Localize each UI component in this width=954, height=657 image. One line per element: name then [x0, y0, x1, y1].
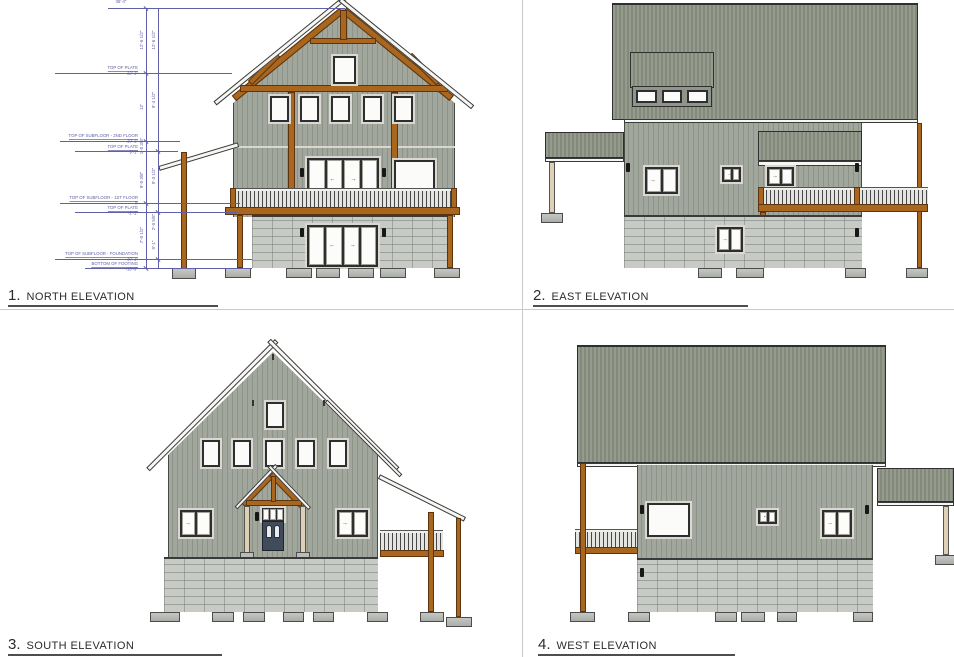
footing — [434, 268, 460, 278]
window-pane: → — [769, 169, 780, 184]
west-roof — [577, 345, 886, 463]
window-pane — [733, 169, 740, 180]
east-porch-fascia — [545, 158, 624, 162]
horizontal-divider — [0, 309, 954, 310]
east-dormer — [630, 52, 714, 88]
window-pane: → — [724, 169, 731, 180]
railing-newel-post — [230, 188, 236, 208]
west-porch-post — [943, 506, 949, 555]
view-label: WEST ELEVATION — [557, 640, 657, 652]
level-annotation: BOTTOM OF FOOTING-10'-9" — [46, 262, 138, 272]
view-number: 2. — [533, 287, 546, 304]
vertical-divider — [522, 0, 523, 657]
porch-post — [300, 506, 306, 554]
view-number: 1. — [8, 287, 21, 304]
north-loft-window — [333, 56, 356, 84]
east-porch-post — [549, 162, 555, 213]
window-pane: → — [339, 512, 352, 535]
chain-dim: 12' — [140, 90, 146, 125]
west-foundation — [637, 558, 873, 612]
chain-dim: 12'-6 1/2" — [152, 23, 158, 58]
window-pane — [731, 229, 741, 250]
footing — [225, 268, 251, 278]
window-pane: ← — [760, 512, 767, 522]
footing — [777, 612, 797, 622]
view-title-north: 1. NORTH ELEVATION — [8, 287, 218, 307]
dormer-window — [687, 90, 708, 103]
footing — [446, 617, 472, 627]
east-dormer-window-band — [632, 86, 712, 107]
window-pane — [782, 169, 793, 184]
footing — [628, 612, 650, 622]
wall-sconce-icon — [382, 168, 386, 177]
footing — [367, 612, 388, 622]
view-number: 4. — [538, 636, 551, 653]
window-pane: → — [182, 512, 195, 535]
footing — [212, 612, 234, 622]
north-2nd-floor-window — [394, 96, 413, 122]
deck-support-post — [447, 215, 453, 268]
west-porch-roof — [877, 468, 954, 502]
west-wall-right-edge — [872, 465, 873, 558]
roof-vent-mark — [323, 400, 325, 406]
door-panel — [309, 227, 324, 265]
north-picture-window — [394, 160, 435, 191]
footing — [698, 268, 722, 278]
slider-arrow-icon: → — [772, 173, 778, 179]
footing — [316, 268, 340, 278]
deck-support-post — [456, 518, 461, 617]
north-deck-band — [225, 207, 460, 215]
north-porch-post — [181, 152, 187, 270]
north-floor-band-trim — [233, 146, 455, 148]
slider-arrow-icon: → — [185, 520, 191, 526]
view-label: SOUTH ELEVATION — [27, 640, 135, 652]
roof-peak-mark — [272, 354, 274, 360]
level-annotation: TOP OF SUBFLOOR - 2ND FLOOR10'-1" — [46, 134, 138, 144]
footing — [853, 612, 873, 622]
slider-arrow-icon: ← — [330, 177, 336, 183]
chain-dim: 9'-0 3/8" — [140, 163, 146, 198]
west-slider-window: → — [822, 510, 852, 537]
footing — [715, 612, 737, 622]
south-2nd-floor-window — [202, 440, 220, 467]
south-wall-right-edge — [377, 455, 378, 557]
dormer-window — [636, 90, 657, 103]
window-pane — [838, 512, 850, 535]
slider-arrow-icon: → — [722, 236, 728, 242]
west-picture-window — [647, 503, 690, 537]
east-foundation — [624, 215, 862, 268]
wall-sconce-icon — [855, 163, 859, 172]
footing — [420, 612, 444, 622]
north-2nd-floor-window — [270, 96, 289, 122]
slider-arrow-icon: → — [827, 520, 833, 526]
north-timber-beam — [240, 85, 448, 92]
wall-sconce-icon — [300, 228, 304, 237]
view-title-east: 2. EAST ELEVATION — [533, 287, 748, 307]
window-pane — [769, 512, 776, 522]
overall-height-dim: 36'-4" — [98, 0, 144, 5]
south-wall-left-edge — [168, 455, 169, 557]
window-pane: → — [647, 169, 661, 192]
view-title-west: 4. WEST ELEVATION — [538, 636, 735, 656]
chain-dim: 9'-3 1/2" — [152, 159, 158, 194]
roof-vent-mark — [252, 400, 254, 406]
footing — [172, 268, 196, 279]
wall-sconce-icon — [640, 505, 644, 514]
window-pane: → — [719, 229, 729, 250]
south-window-right: → — [337, 510, 368, 537]
footing — [348, 268, 374, 278]
south-deck-roof-fascia — [378, 474, 466, 521]
wall-sconce-icon — [300, 168, 304, 177]
window-pane — [354, 512, 367, 535]
window-pane — [197, 512, 210, 535]
view-label: NORTH ELEVATION — [27, 291, 135, 303]
west-wall-left-edge — [637, 465, 638, 558]
footing — [283, 612, 304, 622]
footing — [541, 213, 563, 223]
footing — [243, 612, 265, 622]
deck-support-post — [428, 512, 434, 612]
north-2nd-floor-window — [331, 96, 350, 122]
north-2nd-floor-window — [363, 96, 382, 122]
footing — [150, 612, 180, 622]
window-pane: → — [824, 512, 836, 535]
wall-sconce-icon — [855, 228, 859, 237]
porch-kingpost — [271, 476, 276, 502]
footing — [906, 268, 928, 278]
east-basement-window: → — [717, 227, 743, 252]
east-deck-band — [758, 204, 928, 212]
east-eave-fascia — [624, 119, 918, 123]
dormer-window — [662, 90, 683, 103]
south-foundation — [164, 557, 378, 612]
south-2nd-floor-window — [297, 440, 315, 467]
slider-arrow-icon: → — [650, 177, 656, 183]
slider-arrow-icon: → — [350, 243, 356, 249]
entry-door — [262, 521, 284, 551]
footing — [935, 555, 954, 565]
wall-sconce-icon — [640, 568, 644, 577]
door-panel: → — [344, 227, 359, 265]
wall-sconce-icon — [865, 505, 869, 514]
door-panel: ← — [326, 227, 341, 265]
footing — [845, 268, 866, 278]
west-small-window: ← — [758, 510, 777, 524]
level-annotation: TOP OF SUBFLOOR - FOUNDATION-10'-1" — [46, 252, 138, 262]
north-basement-door-unit: ← → — [307, 225, 378, 267]
elevation-sheet: ← → ← → — [0, 0, 954, 657]
footing — [570, 612, 595, 622]
south-deck-band — [380, 550, 444, 557]
west-deck-post — [580, 463, 586, 612]
wall-sconce-icon — [382, 228, 386, 237]
view-title-south: 3. SOUTH ELEVATION — [8, 636, 222, 656]
slider-arrow-icon: ← — [329, 243, 335, 249]
south-2nd-floor-window — [329, 440, 347, 467]
railing-newel-post — [451, 188, 457, 208]
deck-support-post — [237, 215, 243, 268]
door-lite — [274, 525, 280, 538]
east-slider-window: → — [645, 167, 678, 194]
south-loft-window — [266, 402, 284, 428]
dimension-line — [108, 8, 345, 9]
east-deck-roof-fascia — [758, 161, 862, 166]
porch-post — [244, 506, 250, 554]
door-lite — [266, 525, 272, 538]
dimension-chain — [146, 8, 147, 268]
window-pane — [263, 509, 269, 520]
chain-dim: 1'-0 3/8" — [140, 129, 146, 164]
east-deck-roof — [758, 131, 862, 161]
footing — [313, 612, 334, 622]
chain-dim: 12'-6 1/2" — [140, 23, 146, 58]
door-panel — [361, 227, 376, 265]
slider-arrow-icon: → — [342, 520, 348, 526]
window-pane — [277, 509, 283, 520]
south-window-left: → — [180, 510, 212, 537]
window-pane — [270, 509, 276, 520]
view-number: 3. — [8, 636, 21, 653]
wall-sconce-icon — [255, 512, 259, 521]
east-deck-window: → — [767, 167, 794, 186]
dimension-chain — [158, 8, 159, 268]
slider-arrow-icon: → — [351, 177, 357, 183]
east-porch-roof — [545, 132, 624, 158]
north-timber-kingpost — [340, 10, 347, 40]
north-deck-railing — [230, 189, 457, 207]
level-annotation: TOP OF PLATE22'-1" — [46, 66, 138, 76]
east-small-window: → — [722, 167, 741, 182]
footing — [741, 612, 765, 622]
level-annotation: TOP OF PLATE-1'-1" — [46, 206, 138, 216]
north-porch-roof-fascia — [158, 142, 239, 171]
east-deck-railing — [758, 188, 928, 205]
footing — [736, 268, 764, 278]
level-annotation: TOP OF PLATE9'-1" — [46, 145, 138, 155]
level-annotation: TOP OF SUBFLOOR - 1ST FLOOR0' — [46, 196, 138, 206]
chain-dim: 9'-4 1/2" — [152, 83, 158, 118]
east-wall-left-edge — [624, 121, 625, 215]
south-2nd-floor-window — [233, 440, 251, 467]
north-2nd-floor-window — [300, 96, 319, 122]
south-2nd-floor-window — [265, 440, 283, 467]
footing — [380, 268, 406, 278]
wall-sconce-icon — [626, 163, 630, 172]
footing — [286, 268, 312, 278]
view-label: EAST ELEVATION — [552, 291, 649, 303]
chain-dim: 7'-0 1/2" — [140, 218, 146, 253]
window-pane — [663, 169, 677, 192]
entry-transom-window — [262, 508, 284, 521]
